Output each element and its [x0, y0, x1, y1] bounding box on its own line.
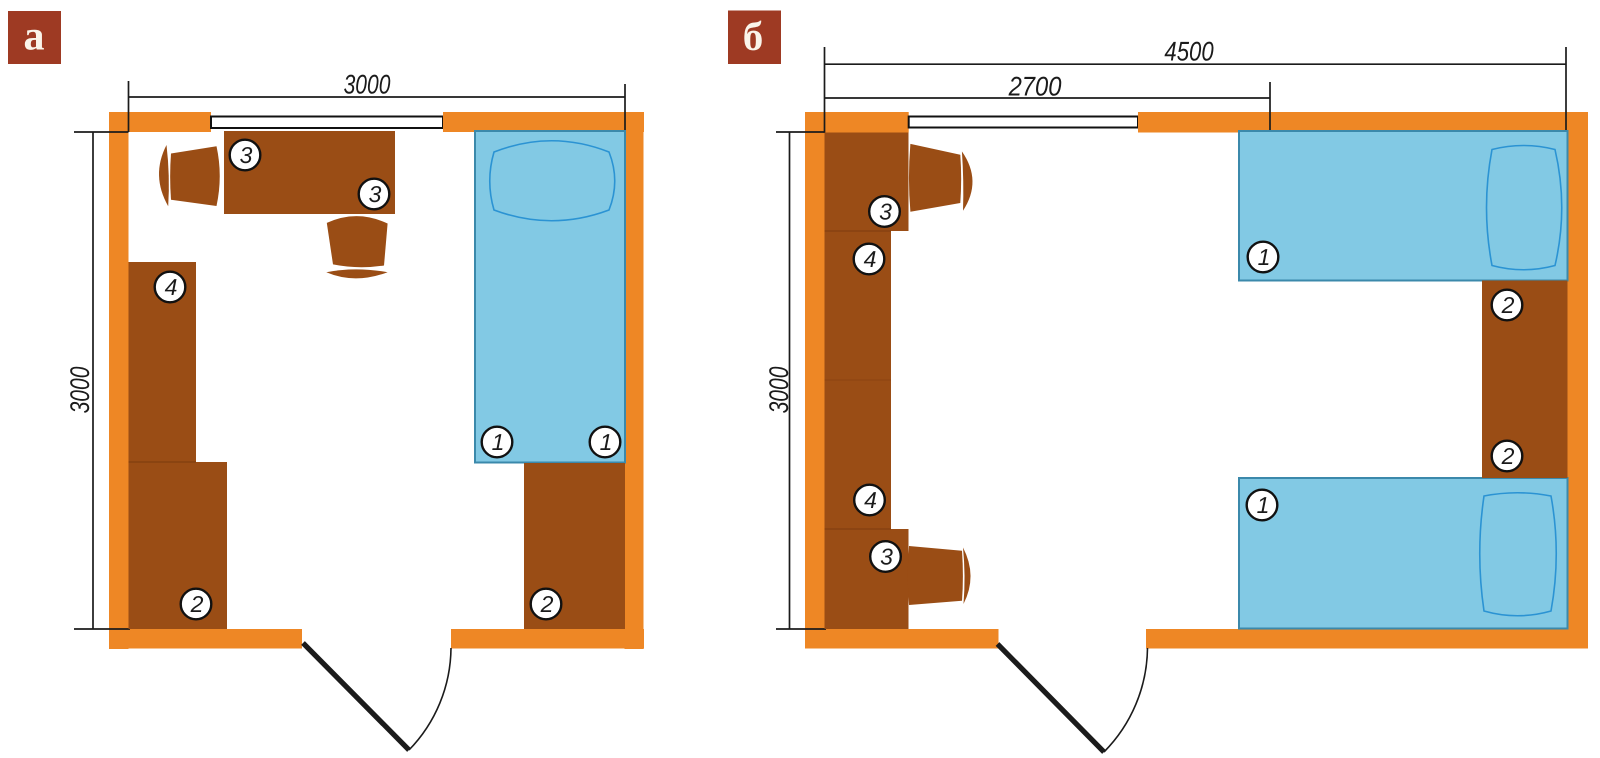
- svg-text:3: 3: [240, 142, 253, 168]
- svg-text:4: 4: [165, 274, 178, 300]
- svg-text:a: a: [24, 14, 45, 60]
- svg-text:2: 2: [1501, 292, 1515, 318]
- svg-text:1: 1: [492, 429, 505, 455]
- svg-text:2: 2: [540, 591, 554, 617]
- svg-text:4: 4: [864, 487, 877, 513]
- svg-text:4500: 4500: [1164, 36, 1213, 66]
- svg-text:4: 4: [864, 246, 877, 272]
- svg-text:3: 3: [879, 199, 892, 225]
- svg-text:2700: 2700: [1008, 72, 1062, 102]
- svg-text:3: 3: [880, 544, 893, 570]
- svg-text:б: б: [743, 13, 764, 59]
- svg-text:1: 1: [1258, 244, 1271, 270]
- svg-text:3000: 3000: [764, 367, 794, 414]
- svg-text:2: 2: [190, 591, 204, 617]
- svg-text:3000: 3000: [344, 70, 391, 100]
- svg-text:1: 1: [600, 429, 613, 455]
- svg-text:2: 2: [1501, 443, 1515, 469]
- svg-text:3: 3: [369, 181, 382, 207]
- svg-text:1: 1: [1257, 492, 1270, 518]
- svg-text:3000: 3000: [65, 367, 95, 414]
